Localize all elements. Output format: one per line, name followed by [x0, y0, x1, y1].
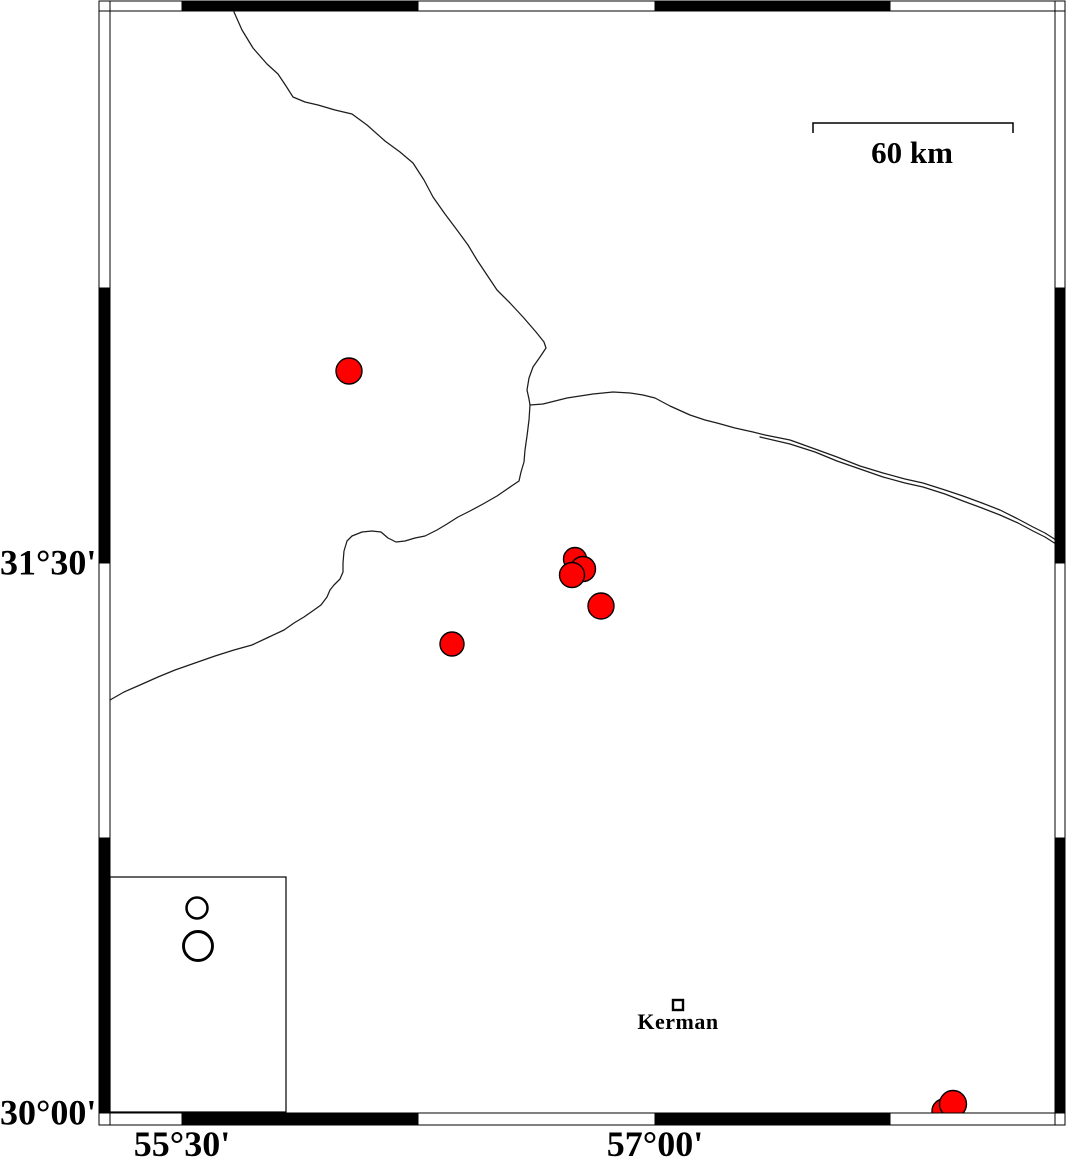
legend-box [110, 877, 286, 1112]
city-label-kerman: Kerman [637, 1011, 718, 1033]
lon-axis-label-57-00: 57°00' [607, 1126, 703, 1162]
epicenter-marker [560, 563, 585, 588]
frame-corner [1055, 1113, 1065, 1125]
frame-segment-top [890, 1, 1055, 11]
frame-segment-right [1055, 563, 1065, 838]
epicenter-marker [588, 593, 614, 619]
epicenter-marker [336, 358, 362, 384]
boundary-line [530, 392, 1056, 540]
seismicity-map: 31°30' 30°00' 55°30' 57°00' 60 km Kerman [0, 0, 1066, 1163]
frame-segment-left [99, 288, 110, 563]
frame-corner [99, 1, 110, 11]
frame-segment-top [655, 1, 890, 11]
frame-segment-top [110, 1, 182, 11]
frame-segment-top [418, 1, 655, 11]
frame-segment-left [99, 563, 110, 838]
epicenter-marker [440, 632, 464, 656]
frame-segment-right [1055, 288, 1065, 563]
boundary-line [234, 12, 546, 405]
boundary-line [760, 437, 1056, 544]
frame-segment-top [182, 1, 418, 11]
boundary-line [110, 405, 530, 700]
scale-bar-label: 60 km [871, 137, 953, 168]
frame-corner [1055, 1, 1065, 11]
frame-corner [99, 1113, 110, 1125]
map-canvas [0, 0, 1066, 1163]
frame-segment-right [1055, 11, 1065, 288]
lat-axis-label-31-30: 31°30' [0, 544, 90, 580]
frame-segment-right [1055, 838, 1065, 1113]
frame-segment-bottom [890, 1113, 1055, 1125]
lon-axis-label-55-30: 55°30' [134, 1126, 230, 1162]
scale-bar-bracket [813, 123, 1013, 133]
lat-axis-label-30-00: 30°00' [0, 1094, 90, 1130]
frame-segment-left [99, 11, 110, 288]
frame-segment-left [99, 838, 110, 1113]
